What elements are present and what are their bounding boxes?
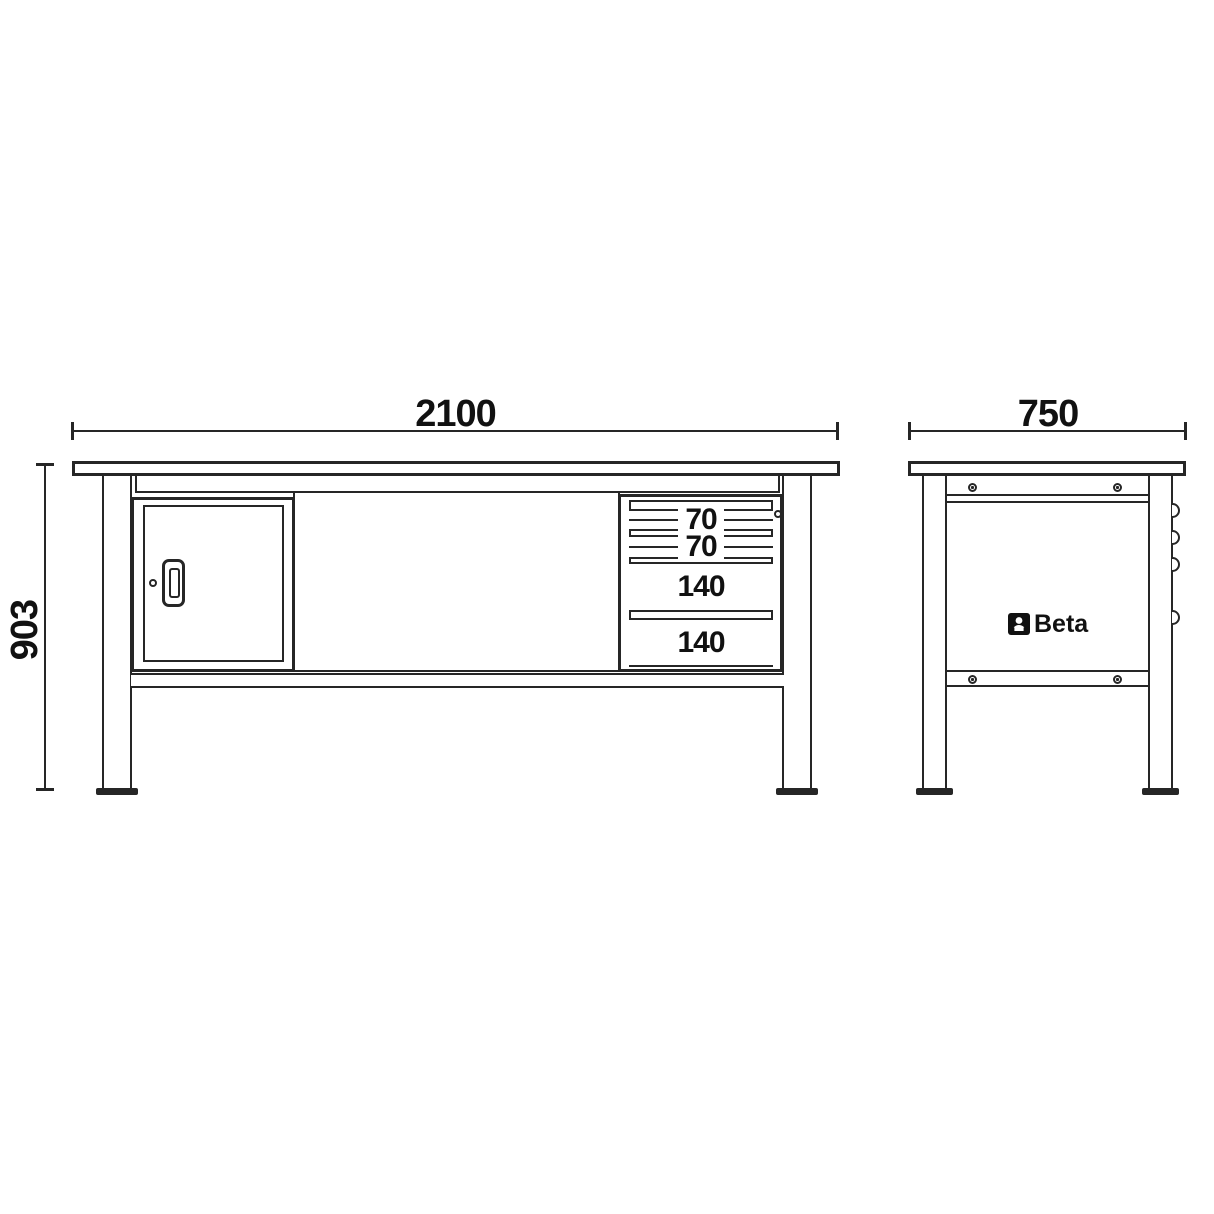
side-top-rail-lip [947,496,1148,503]
technical-drawing-canvas: 2100 903 [0,0,1214,1214]
front-height-dimension-label-wrap: 903 [2,560,48,700]
bolt-icon [968,483,977,492]
bolt-icon [1113,675,1122,684]
side-worktop [908,461,1186,476]
drawer-row-2: 70 [629,535,773,559]
side-left-leg [922,476,947,790]
drawer-row-3: 140 [629,562,773,612]
front-height-dimension-line [44,464,46,790]
door-handle-icon [162,559,185,607]
front-height-dimension-tick-top [36,463,54,466]
front-apron-step-left [135,476,137,493]
drawer-row-1: 70 [629,509,773,531]
front-drawer-unit-inner: 70 70 140 140 [629,500,773,663]
front-apron-step-right [778,476,780,493]
front-right-foot [776,788,818,795]
side-drawer-handle-icon [1172,610,1180,625]
drawer-unit-lock-icon [774,510,782,518]
drawer-4-height-label: 140 [670,628,731,658]
side-depth-dimension-line [909,430,1187,432]
front-left-leg [102,476,132,790]
side-left-foot [916,788,953,795]
side-drawer-handle-icon [1172,503,1180,518]
beta-logo-icon [1008,613,1030,635]
front-worktop [72,461,840,476]
front-width-dimension-tick-right [836,422,839,440]
front-right-leg [782,476,812,790]
door-lock-icon [149,579,157,587]
side-depth-dimension-label: 750 [909,395,1187,433]
front-left-foot [96,788,138,795]
beta-logo: Beta [1008,612,1088,636]
door-handle-inner [169,568,180,598]
side-depth-dimension-tick-left [908,422,911,440]
front-middle-bay [293,491,620,672]
drawer-3-height-label: 140 [670,572,731,602]
front-bottom-rail [131,673,784,688]
front-height-dimension-tick-bottom [36,788,54,791]
side-drawer-handle-icon [1172,530,1180,545]
drawer-row-4: 140 [629,618,773,667]
front-width-dimension-label: 2100 [72,395,839,433]
front-width-dimension-tick-left [71,422,74,440]
side-right-leg [1148,476,1173,790]
bolt-icon [968,675,977,684]
front-width-dimension-line [72,430,839,432]
side-right-foot [1142,788,1179,795]
bolt-icon [1113,483,1122,492]
front-height-dimension-label: 903 [6,600,44,660]
side-depth-dimension-tick-right [1184,422,1187,440]
side-drawer-handle-icon [1172,557,1180,572]
drawer-2-height-label: 70 [678,532,723,562]
beta-logo-text: Beta [1034,613,1088,635]
